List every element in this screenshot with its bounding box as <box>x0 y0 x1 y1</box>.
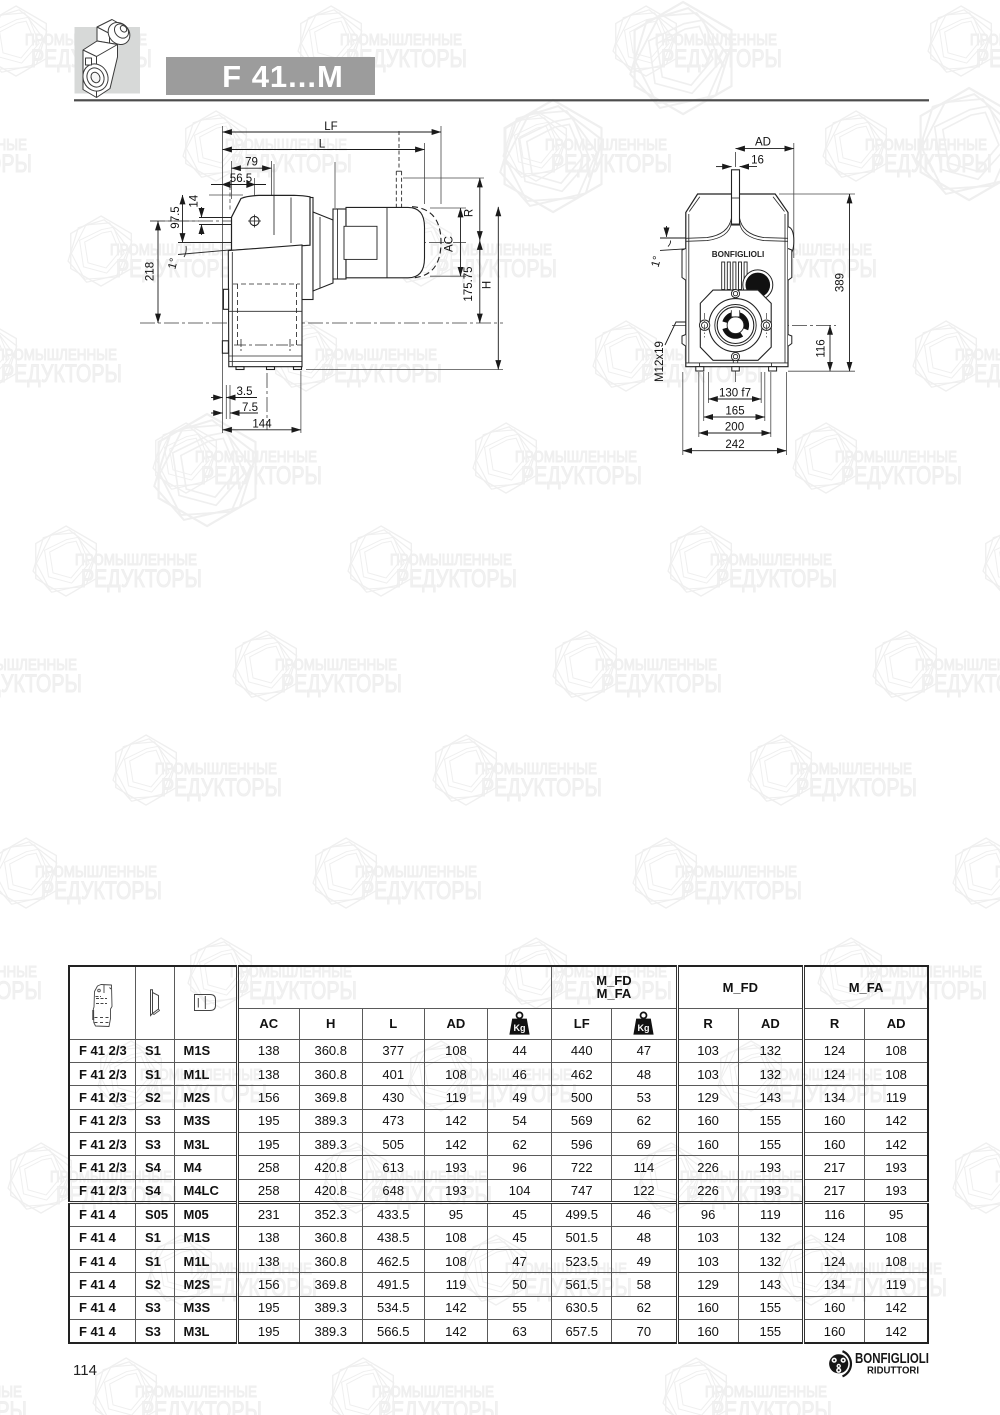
svg-text:56.5: 56.5 <box>230 173 252 185</box>
svg-text:16: 16 <box>751 155 764 167</box>
svg-text:BONFIGLIOLI: BONFIGLIOLI <box>712 250 765 259</box>
svg-text:AD: AD <box>755 136 771 148</box>
svg-text:79: 79 <box>245 157 258 169</box>
svg-text:114: 114 <box>73 1362 97 1379</box>
svg-text:L: L <box>319 138 326 150</box>
svg-text:M12x19: M12x19 <box>654 341 666 382</box>
svg-text:Kg: Kg <box>514 1023 526 1033</box>
svg-text:165: 165 <box>725 405 744 417</box>
svg-text:130 f7: 130 f7 <box>719 388 751 400</box>
svg-text:RIDUTTORI: RIDUTTORI <box>867 1364 919 1376</box>
svg-text:389: 389 <box>835 273 847 292</box>
svg-text:AC: AC <box>444 236 456 252</box>
svg-text:F 41...M: F 41...M <box>222 59 344 94</box>
svg-text:97.5: 97.5 <box>170 206 182 228</box>
svg-text:116: 116 <box>815 339 827 357</box>
svg-text:242: 242 <box>725 439 744 451</box>
svg-text:144: 144 <box>252 418 272 430</box>
svg-text:Kg: Kg <box>638 1023 650 1033</box>
svg-text:218: 218 <box>145 262 157 281</box>
svg-text:H: H <box>482 281 494 289</box>
svg-text:R: R <box>464 209 476 217</box>
svg-text:175.75: 175.75 <box>463 266 475 301</box>
svg-text:1°: 1° <box>650 255 664 269</box>
svg-text:200: 200 <box>725 421 744 433</box>
svg-text:3.5: 3.5 <box>237 386 253 398</box>
svg-text:LF: LF <box>324 121 337 133</box>
svg-text:14: 14 <box>189 194 201 207</box>
svg-text:7.5: 7.5 <box>242 402 258 414</box>
